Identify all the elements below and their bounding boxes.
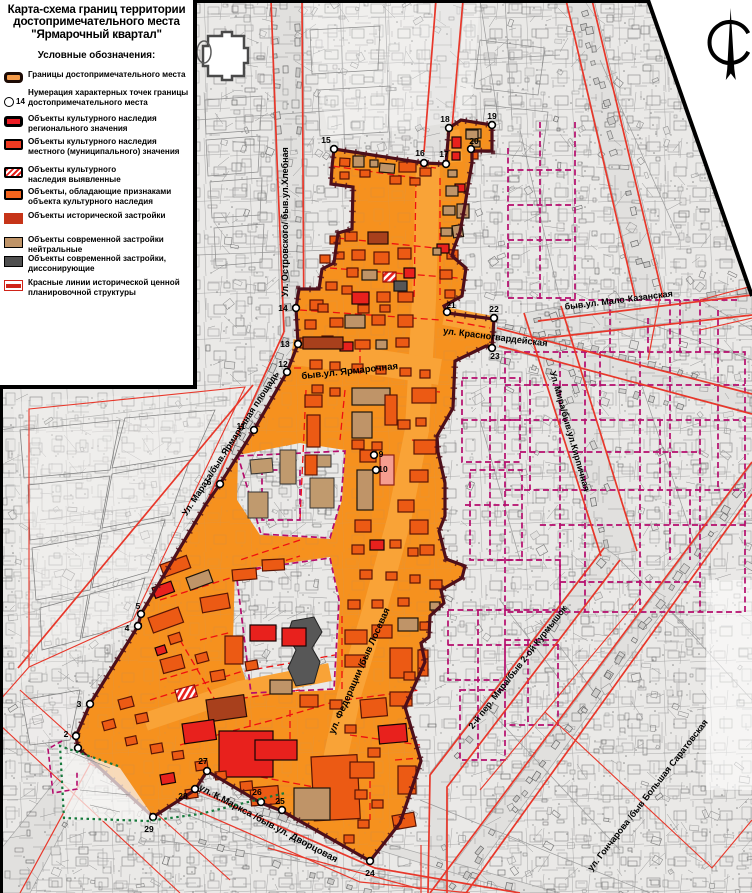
svg-text:12: 12 xyxy=(278,359,288,369)
svg-text:27: 27 xyxy=(198,756,208,766)
svg-text:29: 29 xyxy=(144,824,154,834)
svg-text:3: 3 xyxy=(77,699,82,709)
svg-text:24: 24 xyxy=(365,868,375,878)
svg-text:20: 20 xyxy=(469,136,479,146)
svg-text:19: 19 xyxy=(487,111,497,121)
svg-text:4: 4 xyxy=(125,623,130,633)
svg-text:25: 25 xyxy=(275,796,285,806)
svg-text:15: 15 xyxy=(321,135,331,145)
svg-text:26: 26 xyxy=(252,787,262,797)
svg-text:5: 5 xyxy=(136,601,141,611)
svg-text:10: 10 xyxy=(378,464,388,474)
svg-text:22: 22 xyxy=(489,304,499,314)
svg-text:13: 13 xyxy=(280,339,290,349)
svg-text:18: 18 xyxy=(440,114,450,124)
svg-text:16: 16 xyxy=(415,148,425,158)
svg-text:Ул. Островского/ быв.ул.Хлебна: Ул. Островского/ быв.ул.Хлебная xyxy=(280,147,290,297)
svg-text:2: 2 xyxy=(64,729,69,739)
svg-text:28: 28 xyxy=(178,791,188,801)
svg-text:23: 23 xyxy=(490,351,500,361)
svg-text:21: 21 xyxy=(446,300,456,310)
svg-text:17: 17 xyxy=(439,149,449,159)
svg-text:9: 9 xyxy=(379,449,384,459)
svg-text:14: 14 xyxy=(278,303,288,313)
